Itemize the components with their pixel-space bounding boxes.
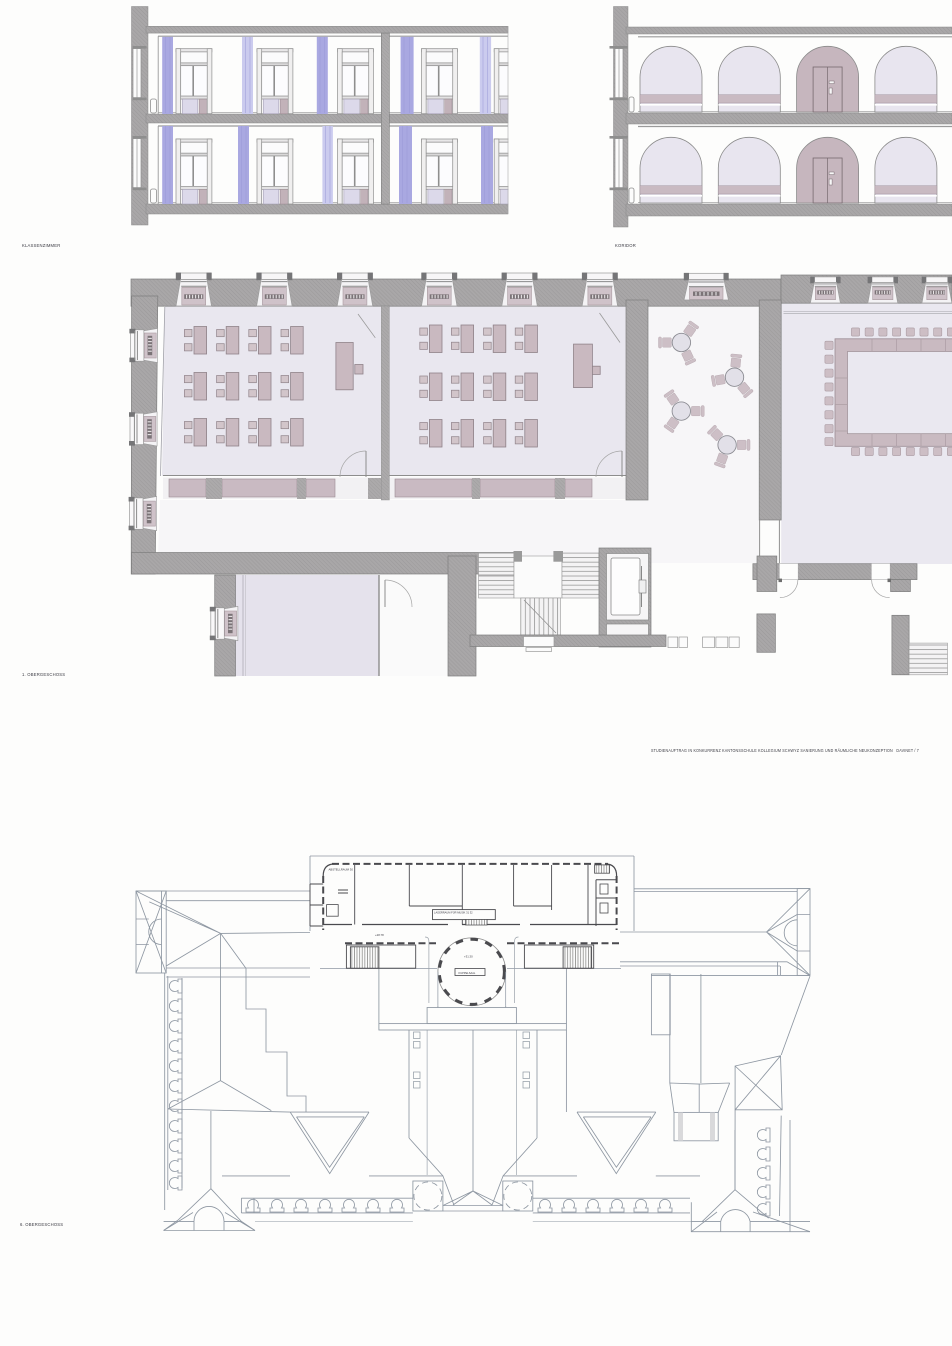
svg-text:1. OBERGESCHOSS: 1. OBERGESCHOSS: [22, 672, 65, 677]
svg-text:+31.30: +31.30: [464, 955, 473, 959]
svg-text:ABSTELLRAUM 30: ABSTELLRAUM 30: [329, 868, 354, 872]
svg-text:+28.78: +28.78: [375, 933, 384, 937]
svg-text:STUDIENAUFTRAG IN KONKURRENZ K: STUDIENAUFTRAG IN KONKURRENZ KANTONSSCHU…: [651, 748, 919, 753]
svg-text:KUPPELSAAL: KUPPELSAAL: [459, 971, 476, 975]
svg-text:KLASSENZIMMER: KLASSENZIMMER: [22, 243, 60, 248]
svg-text:LAGERRAUM FÜR MUSIK 31 32: LAGERRAUM FÜR MUSIK 31 32: [434, 911, 473, 915]
svg-text:KORIDOR: KORIDOR: [615, 243, 636, 248]
svg-text:6. OBERGESCHOSS: 6. OBERGESCHOSS: [20, 1222, 63, 1227]
